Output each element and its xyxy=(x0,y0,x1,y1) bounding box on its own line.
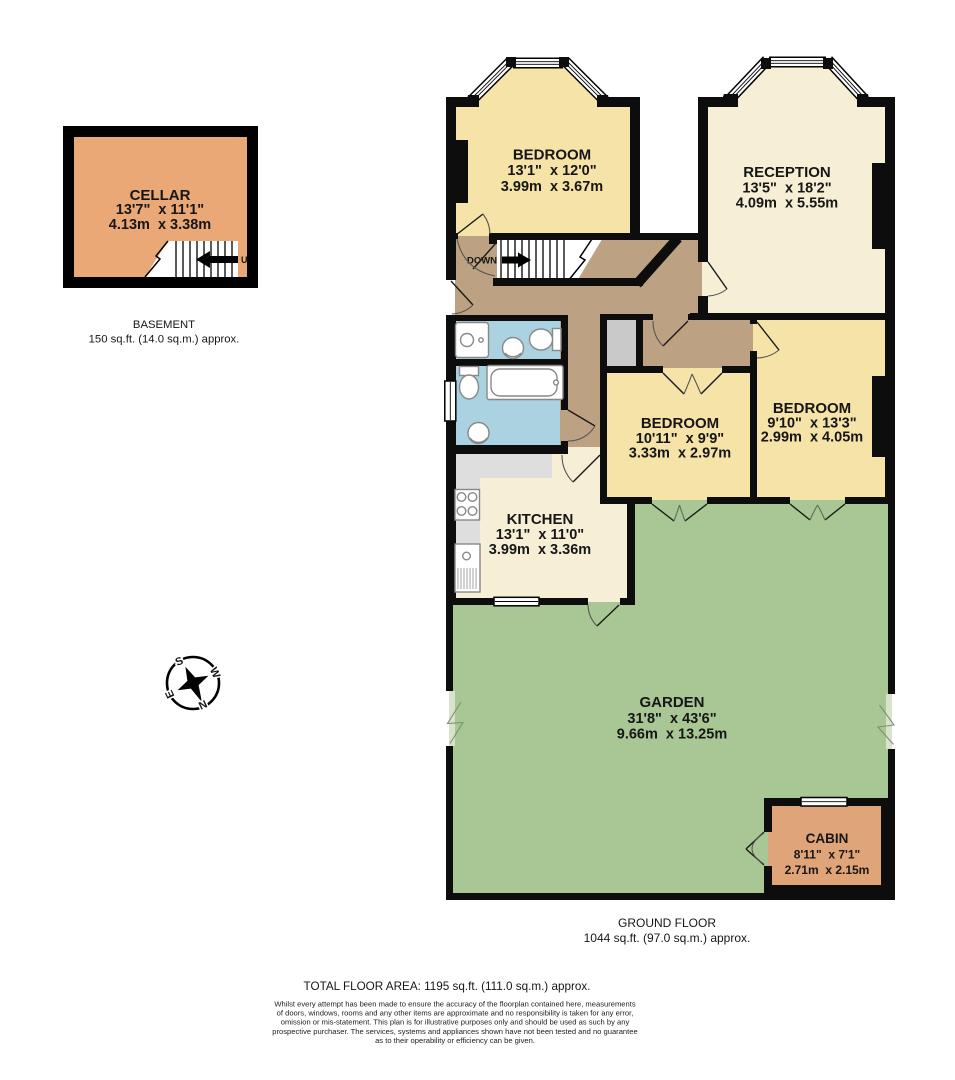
svg-text:KITCHEN: KITCHEN xyxy=(507,511,574,528)
svg-text:4.13m x 3.38m: 4.13m x 3.38m xyxy=(109,217,211,233)
svg-text:31'8" x 43'6": 31'8" x 43'6" xyxy=(627,711,716,727)
svg-text:BEDROOM: BEDROOM xyxy=(641,415,719,432)
svg-text:of doors, windows, rooms and a: of doors, windows, rooms and any other i… xyxy=(277,1009,634,1018)
svg-text:GROUND FLOOR: GROUND FLOOR xyxy=(618,916,716,930)
svg-text:Whilst every attempt has been: Whilst every attempt has been made to en… xyxy=(274,1000,636,1009)
svg-text:13'7" x 11'1": 13'7" x 11'1" xyxy=(116,202,204,218)
svg-text:TOTAL FLOOR AREA: 1195 sq.ft.: TOTAL FLOOR AREA: 1195 sq.ft. (111.0 sq.… xyxy=(304,980,591,993)
svg-text:RECEPTION: RECEPTION xyxy=(743,164,831,181)
svg-text:1044 sq.ft. (97.0 sq.m.) appro: 1044 sq.ft. (97.0 sq.m.) approx. xyxy=(584,931,751,945)
svg-text:13'1" x 12'0": 13'1" x 12'0" xyxy=(507,163,596,179)
svg-text:13'1" x 11'0": 13'1" x 11'0" xyxy=(496,527,584,543)
svg-text:2.99m x 4.05m: 2.99m x 4.05m xyxy=(761,430,863,446)
svg-text:CABIN: CABIN xyxy=(806,831,849,846)
svg-text:3.33m x 2.97m: 3.33m x 2.97m xyxy=(629,446,731,462)
svg-text:9.66m x 13.25m: 9.66m x 13.25m xyxy=(617,727,727,743)
svg-text:GARDEN: GARDEN xyxy=(639,694,704,711)
svg-text:BEDROOM: BEDROOM xyxy=(773,400,851,417)
svg-text:2.71m x 2.15m: 2.71m x 2.15m xyxy=(785,863,870,877)
svg-text:BEDROOM: BEDROOM xyxy=(513,147,591,164)
svg-text:3.99m x 3.67m: 3.99m x 3.67m xyxy=(501,179,603,195)
svg-text:BASEMENT: BASEMENT xyxy=(133,319,195,331)
svg-text:prospective purchaser. The ser: prospective purchaser. The services, sys… xyxy=(272,1027,637,1036)
svg-text:13'5" x 18'2": 13'5" x 18'2" xyxy=(742,181,831,197)
svg-text:omission or mis-statement. Thi: omission or mis-statement. This plan is … xyxy=(281,1018,630,1027)
svg-text:4.09m x 5.55m: 4.09m x 5.55m xyxy=(736,196,838,212)
svg-text:U: U xyxy=(241,255,248,265)
svg-text:as to their operability or eff: as to their operability or efficiency ca… xyxy=(375,1036,535,1045)
svg-text:8'11" x 7'1": 8'11" x 7'1" xyxy=(794,848,860,862)
svg-text:3.99m x 3.36m: 3.99m x 3.36m xyxy=(489,542,591,558)
svg-text:150 sq.ft. (14.0 sq.m.) approx: 150 sq.ft. (14.0 sq.m.) approx. xyxy=(89,334,240,346)
